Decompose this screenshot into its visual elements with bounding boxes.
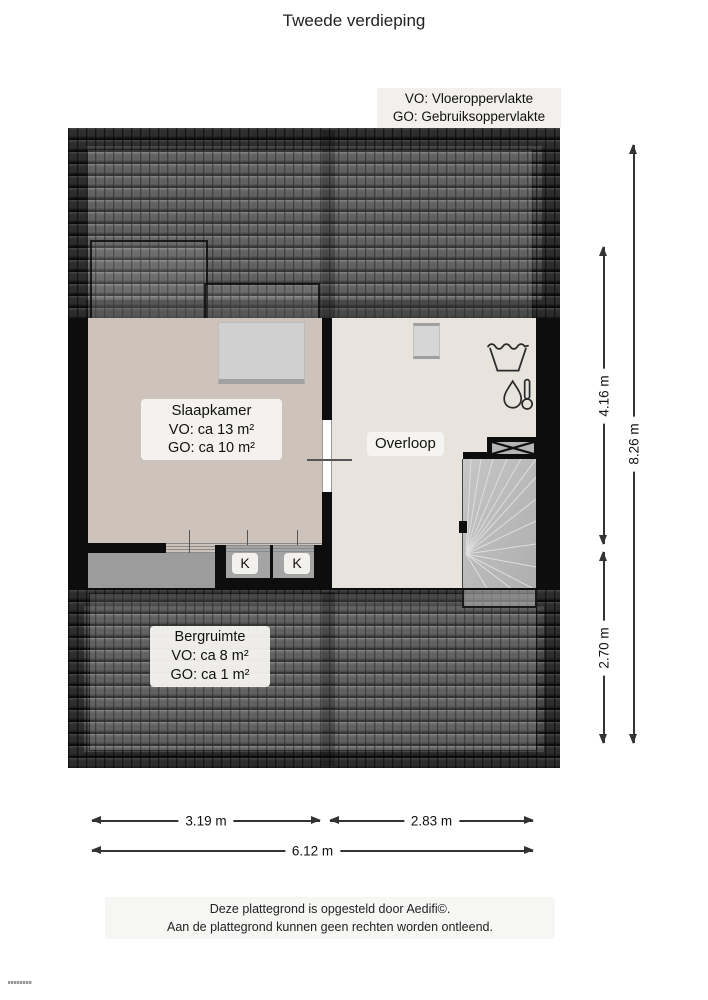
arrow-right-icon bbox=[524, 816, 534, 824]
footer: Deze plattegrond is opgesteld door Aedif… bbox=[105, 897, 555, 939]
water-heater-icon bbox=[502, 378, 534, 412]
arrow-down-icon bbox=[599, 734, 607, 744]
dim-label: 3.19 m bbox=[178, 813, 233, 828]
dim-bottom-3-19: 3.19 m bbox=[92, 820, 320, 822]
dim-right-2-70: 2.70 m bbox=[603, 552, 605, 743]
watermark bbox=[8, 981, 32, 984]
dim-right-8-26: 8.26 m bbox=[633, 145, 635, 743]
arrow-down-icon bbox=[599, 535, 607, 545]
stairs-top-bar bbox=[463, 453, 488, 459]
roof-top-seam bbox=[322, 130, 335, 318]
dim-label: 8.26 m bbox=[626, 416, 641, 471]
dim-bottom-2-83: 2.83 m bbox=[330, 820, 533, 822]
dim-label: 4.16 m bbox=[596, 368, 611, 423]
skylight-window bbox=[413, 323, 440, 359]
closet-block: K K bbox=[215, 545, 325, 590]
closet-divider bbox=[270, 545, 273, 578]
arrow-down-icon bbox=[629, 734, 637, 744]
low-headroom-area bbox=[88, 553, 215, 590]
door-tick bbox=[307, 459, 352, 461]
footer-line-1: Deze plattegrond is opgesteld door Aedif… bbox=[105, 900, 555, 918]
dim-label: 2.83 m bbox=[404, 813, 459, 828]
arrow-left-icon bbox=[91, 846, 101, 854]
bergruimte-name: Bergruimte bbox=[158, 628, 262, 647]
slaapkamer-vo: VO: ca 13 m² bbox=[149, 421, 274, 440]
dormer-outline-right bbox=[204, 283, 320, 318]
dim-label: 6.12 m bbox=[285, 843, 340, 858]
wall-slaapkamer-bottom bbox=[68, 543, 166, 553]
slaapkamer-label: Slaapkamer VO: ca 13 m² GO: ca 10 m² bbox=[141, 399, 282, 460]
dormer-outline-left bbox=[90, 240, 208, 318]
dormer-window bbox=[218, 322, 305, 384]
dim-label: 2.70 m bbox=[596, 620, 611, 675]
laundry-tub-icon bbox=[487, 340, 529, 374]
overloop-label: Overloop bbox=[367, 432, 444, 456]
closet-right-label: K bbox=[284, 553, 310, 574]
roof-bottom-seam bbox=[322, 592, 335, 766]
stairs-extension bbox=[462, 590, 537, 608]
floorplan-page: Tweede verdieping VO: Vloeroppervlakte G… bbox=[0, 0, 708, 1000]
footer-line-2: Aan de plattegrond kunnen geen rechten w… bbox=[105, 918, 555, 936]
dim-right-4-16: 4.16 m bbox=[603, 247, 605, 544]
slaapkamer-go: GO: ca 10 m² bbox=[149, 439, 274, 458]
bergruimte-go: GO: ca 1 m² bbox=[158, 666, 262, 685]
arrow-up-icon bbox=[629, 144, 637, 154]
wall-right bbox=[536, 318, 560, 590]
arrow-right-icon bbox=[524, 846, 534, 854]
bergruimte-vo: VO: ca 8 m² bbox=[158, 647, 262, 666]
closet-wall-bottom bbox=[215, 578, 325, 588]
overloop-name: Overloop bbox=[375, 434, 436, 454]
duct-cross-icon bbox=[492, 442, 534, 454]
winder-staircase bbox=[462, 459, 536, 590]
stair-newel bbox=[459, 521, 467, 533]
door-opening bbox=[322, 420, 332, 492]
dim-bottom-6-12: 6.12 m bbox=[92, 850, 533, 852]
arrow-up-icon bbox=[599, 246, 607, 256]
arrow-right-icon bbox=[311, 816, 321, 824]
arrow-up-icon bbox=[599, 551, 607, 561]
arrow-left-icon bbox=[329, 816, 339, 824]
arrow-left-icon bbox=[91, 816, 101, 824]
slaapkamer-name: Slaapkamer bbox=[149, 401, 274, 421]
wall-middle-upper bbox=[322, 318, 332, 420]
closet-left-label: K bbox=[232, 553, 258, 574]
bergruimte-label: Bergruimte VO: ca 8 m² GO: ca 1 m² bbox=[150, 626, 270, 687]
